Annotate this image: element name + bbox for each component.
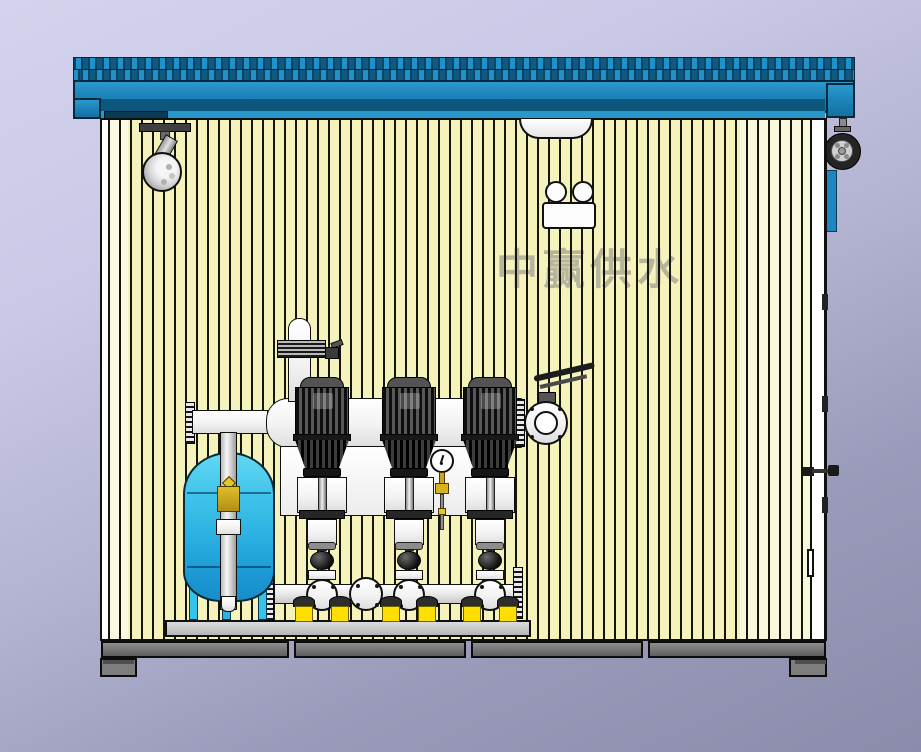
- door-hinge: [822, 396, 828, 412]
- door-slot: [807, 549, 814, 577]
- motor-band: [461, 434, 519, 441]
- pump-coupling: [299, 510, 345, 519]
- motor-ring: [303, 468, 341, 477]
- motor-ring: [471, 468, 509, 477]
- motor-band: [380, 434, 438, 441]
- motor-ring: [390, 468, 428, 477]
- pump-coupling: [386, 510, 432, 519]
- check-valve-body: [397, 551, 421, 570]
- base-frame-segment: [294, 641, 466, 658]
- vibration-pad: [418, 606, 436, 622]
- brass-valve: [217, 486, 240, 512]
- motor-logo-icon: [313, 393, 333, 409]
- vibration-pad: [463, 606, 481, 622]
- motor-taper: [463, 440, 517, 470]
- gauge-stem-fitting: [438, 508, 446, 515]
- door-hinge: [822, 294, 828, 310]
- fan-flange: [834, 126, 851, 132]
- indicator-lamp-icon: [545, 181, 567, 203]
- inlet-pipe: [192, 410, 268, 434]
- vibration-pad: [499, 606, 517, 622]
- motor-taper: [295, 440, 349, 470]
- pump-coupling: [467, 510, 513, 519]
- indicator-lamp-icon: [572, 181, 594, 203]
- motor-body: [295, 387, 349, 435]
- vibration-pad: [331, 606, 349, 622]
- motor-logo-icon: [481, 393, 501, 409]
- base-frame-segment: [471, 641, 643, 658]
- air-release-valve: [277, 340, 326, 358]
- ceiling-dome-light: [519, 119, 593, 139]
- pump-1: [292, 377, 352, 623]
- roof-left-step: [73, 98, 101, 119]
- air-valve-tap: [325, 347, 339, 359]
- foot-left: [100, 658, 137, 677]
- valve-handwheel: [476, 542, 504, 550]
- valve-handwheel: [308, 542, 336, 550]
- indicator-lamp-box: [542, 202, 596, 229]
- vibration-pad: [295, 606, 313, 622]
- base-frame-segment: [101, 641, 289, 658]
- base-frame-segment: [648, 641, 826, 658]
- butterfly-valve-body: [524, 401, 568, 445]
- spotlight-head-icon: [142, 152, 182, 192]
- blind-flange: [349, 577, 383, 611]
- foot-right: [789, 658, 827, 677]
- valve-handwheel: [395, 542, 423, 550]
- motor-body: [382, 387, 436, 435]
- motor-logo-icon: [400, 393, 420, 409]
- pump-2: [379, 377, 439, 623]
- motor-body: [463, 387, 517, 435]
- pipe-union-sleeve: [216, 519, 241, 535]
- side-blue-panel: [826, 170, 837, 232]
- door-hinge: [822, 497, 828, 513]
- motor-taper: [382, 440, 436, 470]
- check-valve-body: [310, 551, 334, 570]
- door-handle-knob: [828, 465, 839, 476]
- pressure-gauge-icon: [430, 449, 454, 473]
- vibration-pad: [382, 606, 400, 622]
- riser-pipe-tip: [221, 596, 236, 612]
- door-handle-shaft: [812, 469, 829, 473]
- gauge-cock-valve: [435, 483, 449, 494]
- exterior-fan-wheel-icon: [824, 133, 861, 170]
- motor-band: [293, 434, 351, 441]
- roof-right-cap: [826, 83, 855, 118]
- check-valve-body: [478, 551, 502, 570]
- pump-3: [460, 377, 520, 623]
- pump-station-render: 中赢供水: [0, 0, 921, 752]
